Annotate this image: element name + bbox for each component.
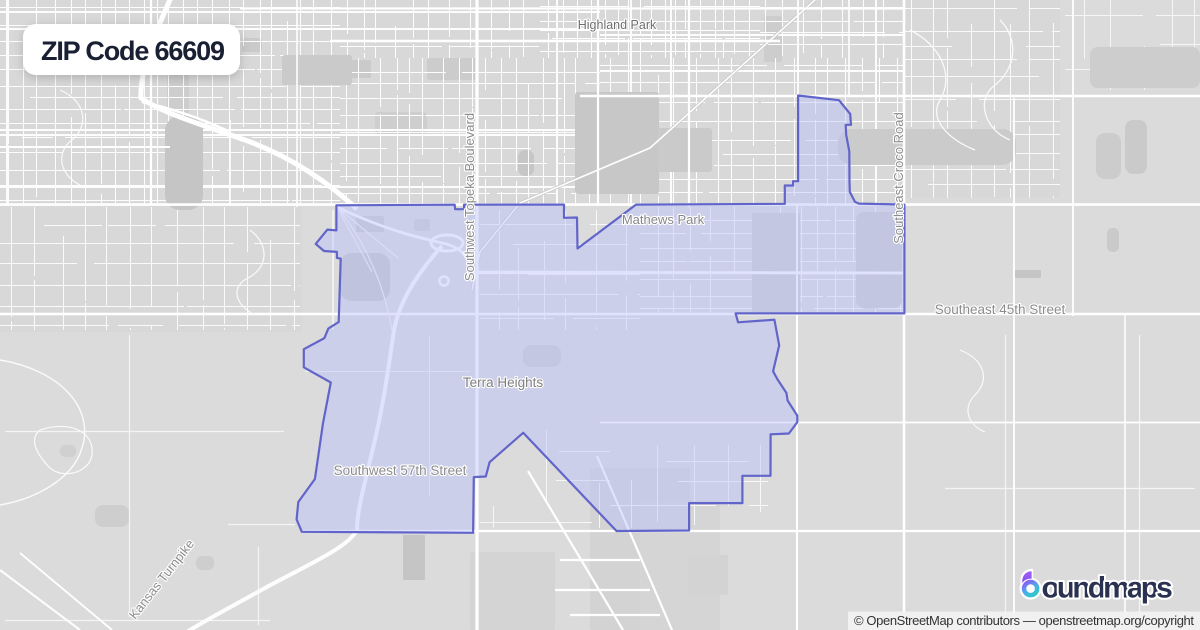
svg-text:Terra Heights: Terra Heights <box>463 375 544 390</box>
svg-text:Highland Park: Highland Park <box>578 18 657 32</box>
svg-text:Southeast 45th Street: Southeast 45th Street <box>935 302 1066 317</box>
svg-text:Southwest 57th Street: Southwest 57th Street <box>334 463 467 478</box>
svg-text:Mathews Park: Mathews Park <box>622 212 705 227</box>
svg-text:Southeast Croco Road: Southeast Croco Road <box>891 112 906 244</box>
svg-text:© OpenStreetMap contributors —: © OpenStreetMap contributors — openstree… <box>854 613 1194 628</box>
svg-text:ZIP Code 66609: ZIP Code 66609 <box>41 36 225 66</box>
svg-text:oundmaps: oundmaps <box>1042 572 1173 605</box>
svg-text:Southwest Topeka Boulevard: Southwest Topeka Boulevard <box>462 113 477 281</box>
